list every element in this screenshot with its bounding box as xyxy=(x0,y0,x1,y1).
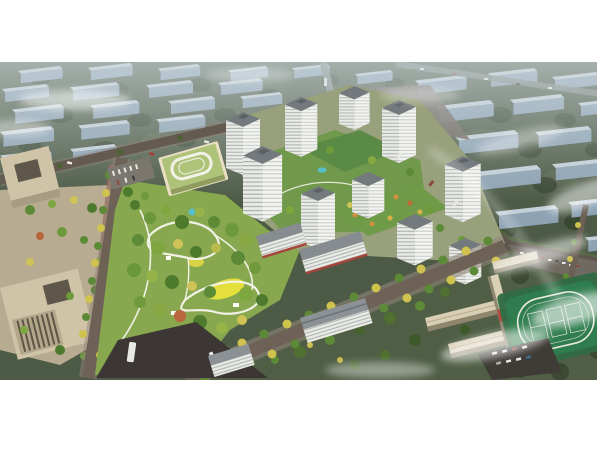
playground-pool xyxy=(189,209,196,216)
courtyard-pool xyxy=(318,167,327,172)
aerial-rendering xyxy=(0,0,600,450)
rendering-canvas xyxy=(0,0,600,450)
